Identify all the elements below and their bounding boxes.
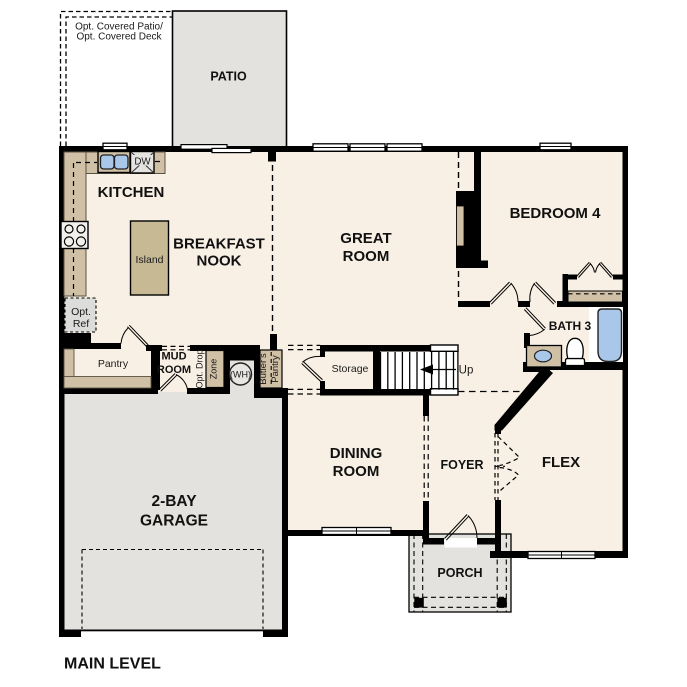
- svg-text:Pantry: Pantry: [270, 355, 281, 383]
- svg-text:ROOM: ROOM: [343, 248, 390, 265]
- svg-text:GREAT: GREAT: [340, 230, 391, 247]
- svg-text:Storage: Storage: [332, 363, 369, 375]
- svg-text:BREAKFAST: BREAKFAST: [173, 236, 265, 253]
- svg-text:Pantry: Pantry: [98, 358, 129, 370]
- svg-text:DINING: DINING: [330, 445, 383, 462]
- svg-text:GARAGE: GARAGE: [140, 513, 208, 530]
- svg-text:PORCH: PORCH: [437, 566, 482, 580]
- svg-text:FOYER: FOYER: [440, 458, 483, 472]
- svg-text:DW: DW: [134, 157, 151, 168]
- svg-text:ROOM: ROOM: [333, 463, 380, 480]
- svg-text:MUD: MUD: [161, 351, 186, 363]
- svg-text:FLEX: FLEX: [542, 454, 580, 471]
- svg-text:PATIO: PATIO: [210, 70, 247, 84]
- svg-text:Ref: Ref: [73, 318, 89, 330]
- svg-text:Opt.: Opt.: [71, 306, 91, 318]
- svg-text:BATH 3: BATH 3: [549, 319, 592, 333]
- svg-text:Opt. Covered Deck: Opt. Covered Deck: [76, 32, 162, 43]
- svg-text:MAIN LEVEL: MAIN LEVEL: [64, 656, 161, 673]
- svg-text:KITCHEN: KITCHEN: [98, 184, 165, 201]
- svg-text:2-BAY: 2-BAY: [151, 493, 197, 510]
- svg-text:Opt. Drop: Opt. Drop: [195, 349, 205, 388]
- svg-text:Up: Up: [459, 365, 474, 377]
- svg-text:Island: Island: [135, 254, 163, 266]
- svg-text:NOOK: NOOK: [197, 253, 242, 270]
- svg-text:Butler's: Butler's: [258, 353, 269, 385]
- svg-text:BEDROOM 4: BEDROOM 4: [510, 205, 602, 222]
- svg-text:(WH): (WH): [230, 370, 251, 380]
- svg-text:Zone: Zone: [209, 359, 219, 380]
